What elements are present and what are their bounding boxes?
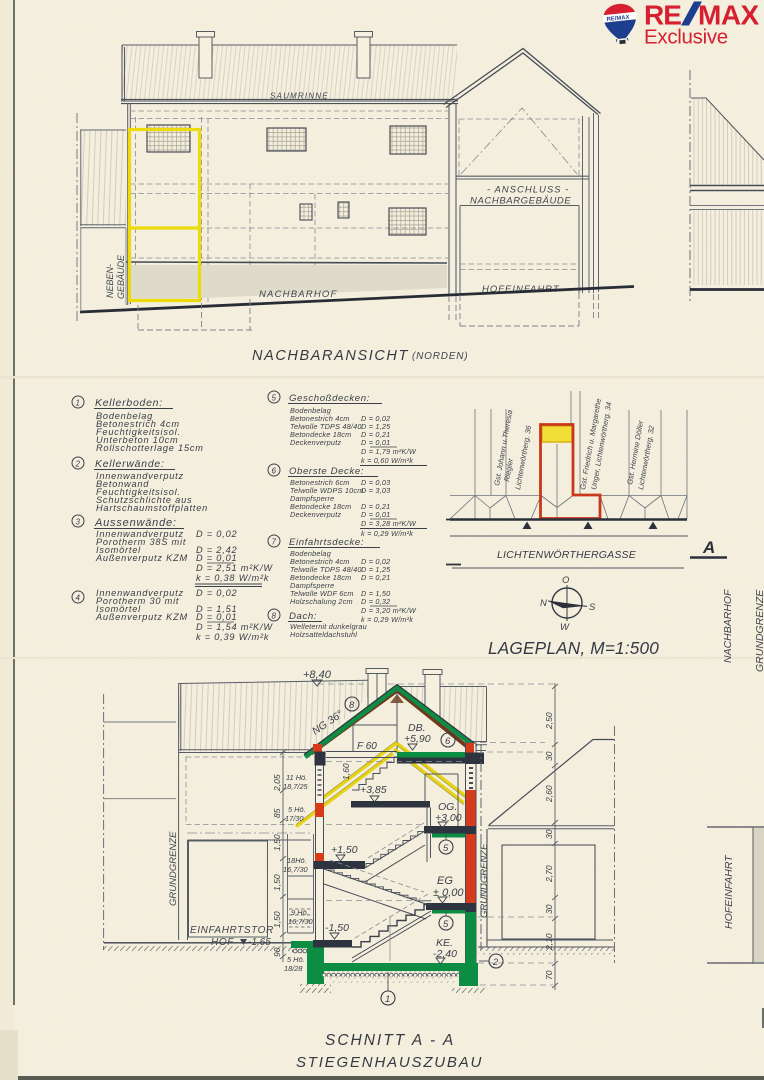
svg-text:D = 3,28 m²K/W: D = 3,28 m²K/W <box>361 519 417 528</box>
svg-text:EINFAHRTSTOR: EINFAHRTSTOR <box>190 925 274 936</box>
svg-text:2,60: 2,60 <box>544 785 554 803</box>
svg-text:F 60: F 60 <box>357 741 377 752</box>
svg-text:6: 6 <box>272 467 277 476</box>
svg-text:5: 5 <box>443 843 449 854</box>
svg-text:D = 0,01: D = 0,01 <box>196 612 237 622</box>
svg-text:1: 1 <box>76 399 81 408</box>
svg-text:GRUNDGRENZE: GRUNDGRENZE <box>479 843 490 918</box>
svg-text:GRUNDGRENZE: GRUNDGRENZE <box>168 831 179 906</box>
svg-text:Außenverputz KZM: Außenverputz KZM <box>95 612 188 622</box>
svg-text:D = 2,51 m²K/W: D = 2,51 m²K/W <box>196 563 273 573</box>
svg-text:Kellerwände:: Kellerwände: <box>95 459 165 470</box>
svg-text:W: W <box>560 622 570 633</box>
svg-text:k = 0,38 W/m²k: k = 0,38 W/m²k <box>196 573 269 583</box>
svg-text:2,70: 2,70 <box>544 865 554 883</box>
svg-text:2,50: 2,50 <box>544 712 554 730</box>
svg-text:D = 3,03: D = 3,03 <box>361 486 390 495</box>
svg-text:(NORDEN): (NORDEN) <box>412 351 468 362</box>
svg-text:Aussenwände:: Aussenwände: <box>94 517 177 529</box>
svg-text:NACHBARHOF: NACHBARHOF <box>259 289 338 300</box>
svg-text:- ANSCHLUSS -: - ANSCHLUSS - <box>487 185 569 196</box>
svg-text:D = 0,32: D = 0,32 <box>361 597 390 606</box>
svg-text:Deckenverputz: Deckenverputz <box>290 438 341 447</box>
svg-text:HOFEINFAHRT: HOFEINFAHRT <box>723 854 735 929</box>
svg-text:8: 8 <box>349 700 355 711</box>
svg-text:GEBÄUDE: GEBÄUDE <box>116 254 126 299</box>
svg-text:11 Hö.: 11 Hö. <box>286 773 307 782</box>
svg-text:70: 70 <box>544 970 554 980</box>
svg-text:1,50: 1,50 <box>272 911 282 928</box>
svg-text:90: 90 <box>272 947 282 957</box>
svg-text:1,50: 1,50 <box>272 834 282 851</box>
svg-text:8: 8 <box>272 612 277 621</box>
svg-text:5 Hö.: 5 Hö. <box>287 955 305 964</box>
svg-text:85: 85 <box>272 808 282 818</box>
svg-text:Deckenverputz: Deckenverputz <box>290 510 341 519</box>
svg-text:D = 0,01: D = 0,01 <box>196 553 237 563</box>
svg-text:A: A <box>702 538 715 557</box>
svg-text:LICHTENWÖRTHERGASSE: LICHTENWÖRTHERGASSE <box>497 549 637 561</box>
svg-text:+1,50: +1,50 <box>331 844 358 856</box>
svg-text:S: S <box>589 602 596 613</box>
svg-text:NACHBARHOF: NACHBARHOF <box>722 589 734 663</box>
svg-text:EG: EG <box>437 875 453 887</box>
svg-text:Einfahrtsdecke:: Einfahrtsdecke: <box>289 537 364 548</box>
svg-text:D = 0,01: D = 0,01 <box>361 510 390 519</box>
svg-text:18,7/25: 18,7/25 <box>283 782 309 791</box>
svg-text:2,05: 2,05 <box>272 774 282 792</box>
svg-text:3: 3 <box>76 518 81 527</box>
svg-text:+3,85: +3,85 <box>360 784 387 796</box>
svg-text:30: 30 <box>544 829 554 839</box>
svg-text:D = 0,02: D = 0,02 <box>196 529 237 539</box>
svg-text:Rollschotterlage 15cm: Rollschotterlage 15cm <box>96 443 204 453</box>
svg-text:+8,40: +8,40 <box>303 669 332 681</box>
svg-text:9 Hö.: 9 Hö. <box>291 908 309 917</box>
svg-text:Exclusive: Exclusive <box>644 26 728 49</box>
svg-text:5 Hö.: 5 Hö. <box>288 805 306 814</box>
svg-text:k = 0,29 W/m²k: k = 0,29 W/m²k <box>361 529 413 538</box>
svg-text:2,10: 2,10 <box>544 933 554 951</box>
svg-text:5: 5 <box>272 394 277 403</box>
svg-text:30: 30 <box>544 751 554 761</box>
svg-text:NEBEN-: NEBEN- <box>105 264 115 298</box>
svg-text:16,7/30: 16,7/30 <box>283 865 309 874</box>
svg-text:NACHBARANSICHT: NACHBARANSICHT <box>252 348 409 364</box>
svg-text:k = 0,39 W/m²k: k = 0,39 W/m²k <box>196 632 269 642</box>
svg-text:4: 4 <box>76 594 81 603</box>
svg-text:18/28: 18/28 <box>284 964 303 973</box>
svg-text:Dach:: Dach: <box>289 611 317 622</box>
svg-text:Hartschaumstoffplatten: Hartschaumstoffplatten <box>96 503 208 513</box>
svg-text:D = 3,20 m²K/W: D = 3,20 m²K/W <box>361 606 417 615</box>
svg-text:17/30: 17/30 <box>285 814 304 823</box>
svg-text:D = 1,79 m²K/W: D = 1,79 m²K/W <box>361 447 417 456</box>
svg-text:6: 6 <box>445 736 451 747</box>
svg-text:18Hö.: 18Hö. <box>287 856 307 865</box>
svg-text:Geschoßdecken:: Geschoßdecken: <box>289 393 370 404</box>
svg-text:GRUNDGRENZE: GRUNDGRENZE <box>754 589 764 672</box>
svg-text:k = 0,60 W/m²k: k = 0,60 W/m²k <box>361 456 413 465</box>
svg-text:SCHNITT A - A: SCHNITT A - A <box>325 1032 455 1049</box>
svg-text:Oberste Decke:: Oberste Decke: <box>289 466 364 477</box>
svg-text:16,7/30: 16,7/30 <box>288 917 314 926</box>
svg-text:-1,50: -1,50 <box>325 922 349 934</box>
svg-text:SAUMRINNE: SAUMRINNE <box>270 92 329 101</box>
svg-text:D = 0,21: D = 0,21 <box>361 573 390 582</box>
svg-text:5: 5 <box>443 919 449 930</box>
svg-text:2: 2 <box>75 460 81 469</box>
svg-text:LAGEPLAN, M=1:500: LAGEPLAN, M=1:500 <box>488 638 659 658</box>
svg-text:D = 1,54 m²K/W: D = 1,54 m²K/W <box>196 622 273 632</box>
svg-text:+5,90: +5,90 <box>404 733 431 745</box>
svg-text:NACHBARGEBÄUDE: NACHBARGEBÄUDE <box>470 196 571 207</box>
svg-text:D = 0,02: D = 0,02 <box>196 588 237 598</box>
svg-text:1: 1 <box>385 994 390 1005</box>
svg-text:30: 30 <box>544 904 554 914</box>
svg-text:Außenverputz KZM: Außenverputz KZM <box>95 553 188 563</box>
svg-text:O: O <box>562 575 570 586</box>
svg-text:Holzschalung 2cm: Holzschalung 2cm <box>290 597 353 606</box>
svg-text:Holzsatteldachstuhl: Holzsatteldachstuhl <box>290 630 357 639</box>
svg-text:k = 0,29 W/m²k: k = 0,29 W/m²k <box>361 615 413 624</box>
svg-text:N: N <box>540 598 547 609</box>
svg-text:STIEGENHAUSZUBAU: STIEGENHAUSZUBAU <box>296 1054 483 1071</box>
svg-text:D = 0,01: D = 0,01 <box>361 438 390 447</box>
svg-text:1,50: 1,50 <box>272 874 282 891</box>
svg-text:2: 2 <box>492 957 499 968</box>
svg-text:7: 7 <box>272 538 277 547</box>
svg-text:1,60: 1,60 <box>341 763 351 780</box>
svg-text:Kellerboden:: Kellerboden: <box>95 398 163 409</box>
